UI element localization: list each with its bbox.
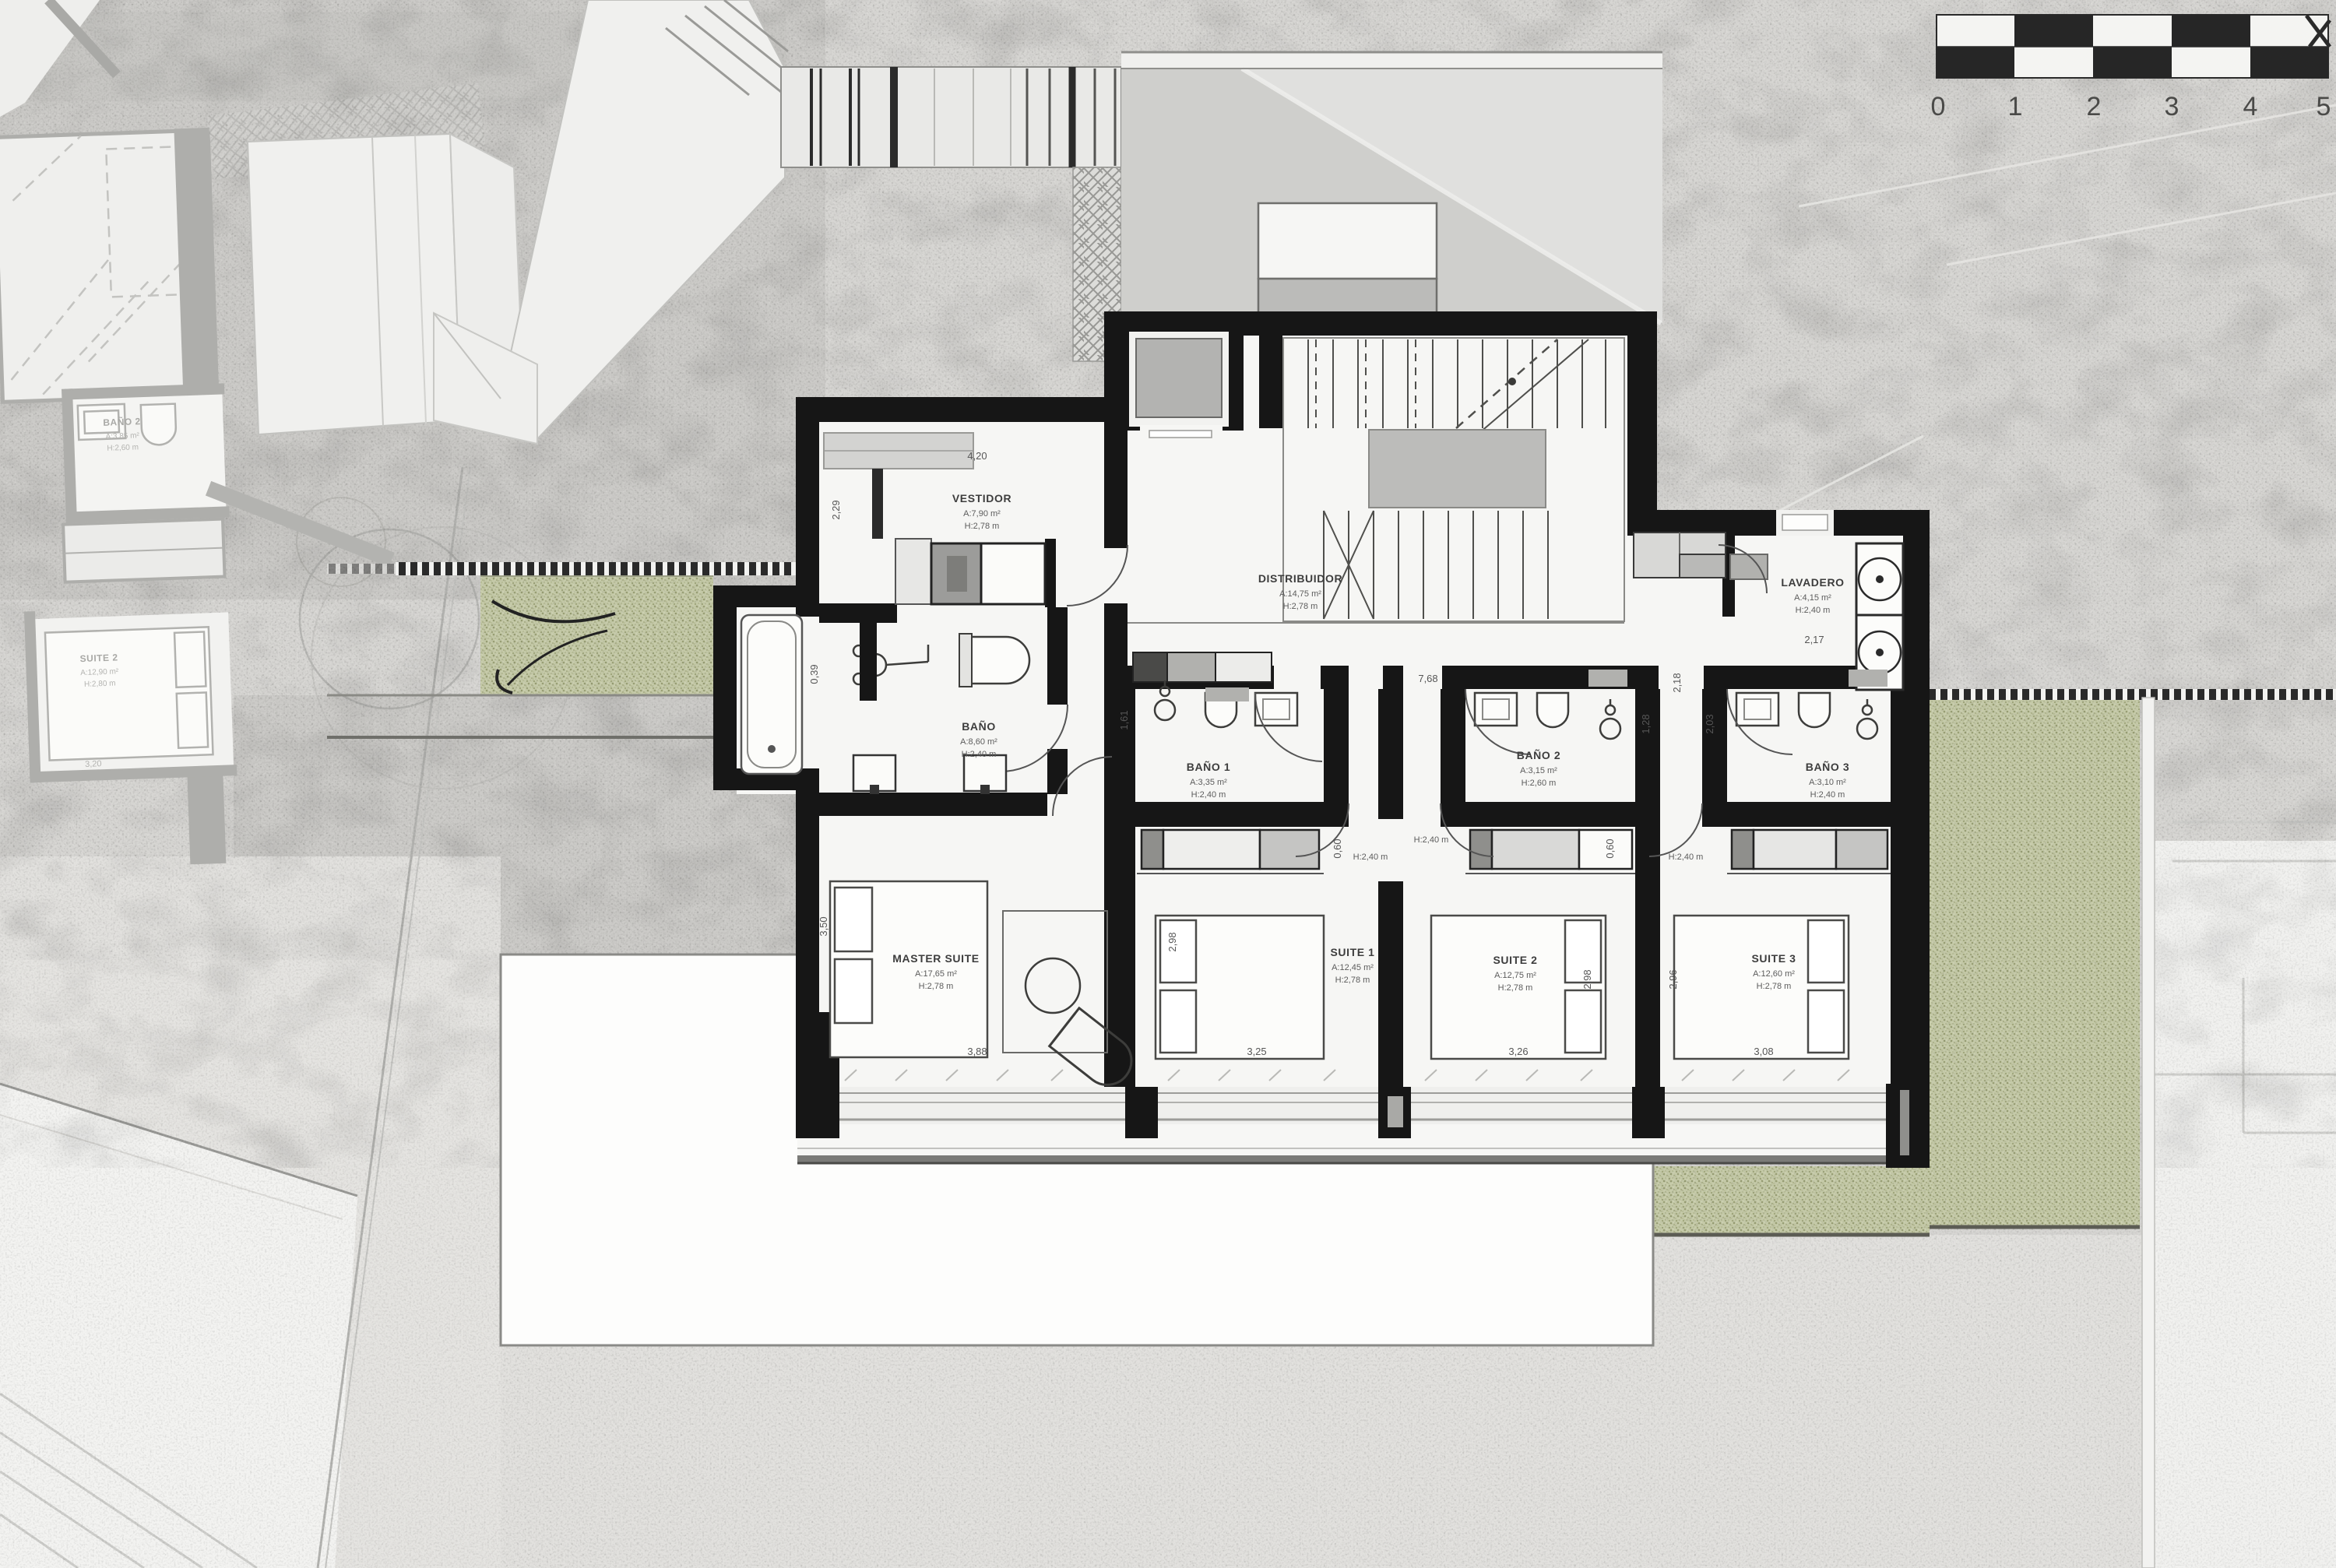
svg-text:A:3,10 m²: A:3,10 m² [1809,778,1846,787]
svg-text:H:2,40 m: H:2,40 m [1353,853,1388,862]
svg-text:2: 2 [2087,92,2102,121]
svg-text:H:2,60 m: H:2,60 m [1522,779,1557,788]
svg-text:0,60: 0,60 [1604,838,1616,858]
svg-text:3,88: 3,88 [967,1046,987,1057]
svg-text:SUITE 1: SUITE 1 [1330,946,1374,958]
svg-text:LAVADERO: LAVADERO [1781,576,1844,589]
svg-text:A:7,90 m²: A:7,90 m² [963,509,1001,519]
svg-text:A:12,45 m²: A:12,45 m² [1332,963,1374,972]
svg-text:3,50: 3,50 [818,916,829,936]
svg-text:H:2,40 m: H:2,40 m [1796,606,1831,615]
svg-text:SUITE 2: SUITE 2 [79,652,118,664]
svg-text:2,29: 2,29 [830,500,842,519]
svg-text:H:2,78 m: H:2,78 m [1335,976,1370,985]
svg-text:SUITE 3: SUITE 3 [1751,952,1796,965]
svg-text:2,96: 2,96 [1667,969,1679,989]
svg-text:H:2,40 m: H:2,40 m [962,750,997,759]
svg-text:A:12,75 m²: A:12,75 m² [1494,971,1536,980]
svg-text:A:12,90 m²: A:12,90 m² [80,667,119,677]
svg-text:H:2,78 m: H:2,78 m [1283,602,1318,611]
svg-text:3,08: 3,08 [1754,1046,1773,1057]
svg-text:H:2,40 m: H:2,40 m [1810,790,1845,800]
svg-text:2,98: 2,98 [1166,932,1178,951]
svg-text:DISTRIBUIDOR: DISTRIBUIDOR [1258,572,1342,585]
svg-text:SUITE 2: SUITE 2 [1493,954,1537,966]
svg-text:0,39: 0,39 [808,664,820,684]
svg-text:H:2,78 m: H:2,78 m [1498,983,1533,993]
svg-text:4,20: 4,20 [967,450,987,462]
svg-text:H:2,78 m: H:2,78 m [919,982,954,991]
svg-text:5: 5 [2317,92,2331,121]
svg-text:1: 1 [2008,92,2023,121]
svg-text:2,17: 2,17 [1804,634,1824,645]
svg-text:1,61: 1,61 [1118,710,1130,730]
svg-text:H:2,40 m: H:2,40 m [1669,853,1704,862]
svg-text:H:2,78 m: H:2,78 m [965,522,1000,531]
svg-text:2,98: 2,98 [1581,969,1593,989]
svg-text:VESTIDOR: VESTIDOR [952,492,1011,505]
svg-text:3,20: 3,20 [85,759,102,769]
svg-text:A:3,85 m²: A:3,85 m² [105,431,139,441]
svg-text:A:12,60 m²: A:12,60 m² [1753,969,1795,979]
svg-text:BAÑO 3: BAÑO 3 [1806,760,1850,773]
svg-text:7,68: 7,68 [1418,673,1437,684]
svg-text:1,28: 1,28 [1640,714,1652,733]
svg-text:BAÑO 2: BAÑO 2 [1517,748,1561,761]
svg-text:3,25: 3,25 [1247,1046,1266,1057]
svg-text:0: 0 [1931,92,1946,121]
svg-text:BAÑO 2: BAÑO 2 [103,415,141,428]
svg-text:A:14,75 m²: A:14,75 m² [1279,589,1321,599]
svg-text:BAÑO 1: BAÑO 1 [1187,760,1231,773]
svg-text:BAÑO: BAÑO [962,719,996,733]
svg-text:MASTER SUITE: MASTER SUITE [892,952,979,965]
svg-text:A:3,15 m²: A:3,15 m² [1520,766,1557,775]
svg-text:H:2,40 m: H:2,40 m [1414,835,1449,845]
svg-text:A:4,15 m²: A:4,15 m² [1794,593,1831,603]
svg-text:H:2,80 m: H:2,80 m [84,680,116,689]
svg-text:A:17,65 m²: A:17,65 m² [915,969,957,979]
svg-text:3: 3 [2165,92,2179,121]
svg-text:H:2,40 m: H:2,40 m [1191,790,1226,800]
svg-text:4: 4 [2243,92,2258,121]
svg-text:2,18: 2,18 [1671,673,1683,692]
svg-text:2,03: 2,03 [1704,714,1715,733]
svg-text:A:8,60 m²: A:8,60 m² [960,737,997,747]
svg-text:3,26: 3,26 [1508,1046,1528,1057]
svg-text:H:2,78 m: H:2,78 m [1757,982,1792,991]
svg-text:H:2,60 m: H:2,60 m [107,443,139,452]
svg-text:A:3,35 m²: A:3,35 m² [1190,778,1227,787]
svg-text:0,60: 0,60 [1332,838,1343,858]
